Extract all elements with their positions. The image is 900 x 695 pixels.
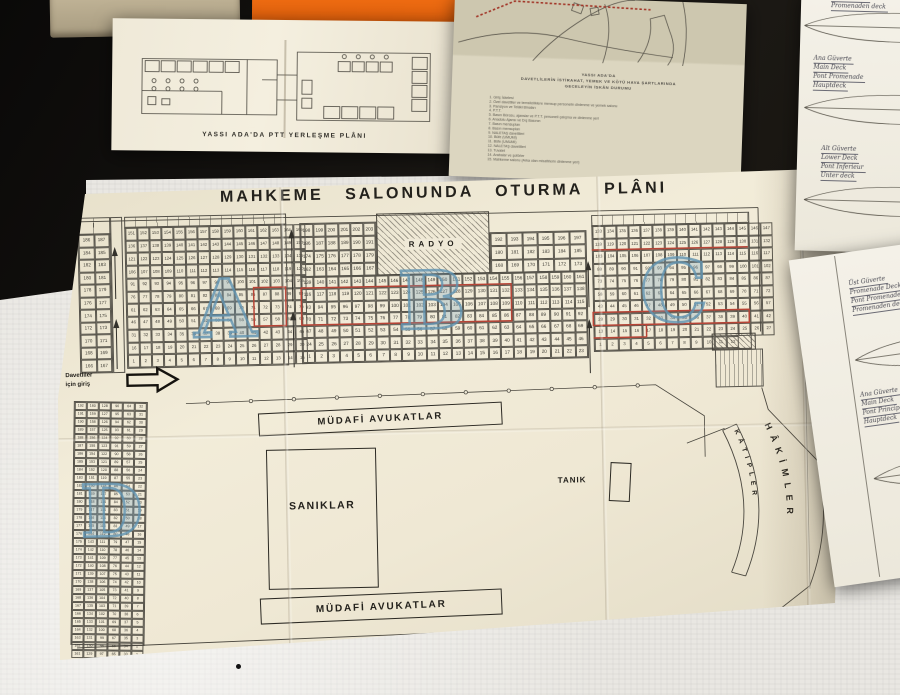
seat: 171 bbox=[96, 334, 112, 347]
info-sheet-document: YASSI ADA'DA DAVETLİLERİN İSTİRAHAT, YEM… bbox=[449, 0, 747, 186]
seat: 138 bbox=[84, 578, 96, 586]
seat: 62 bbox=[139, 304, 151, 317]
seat: 60 bbox=[122, 435, 134, 443]
seat: 14 bbox=[606, 326, 618, 339]
seat: 75 bbox=[364, 312, 377, 325]
seat: 43 bbox=[272, 326, 284, 339]
seat: 41 bbox=[120, 587, 132, 595]
seat: 73 bbox=[271, 301, 283, 314]
seat: 114 bbox=[562, 296, 575, 309]
seat: 70 bbox=[108, 610, 120, 618]
seat: 159 bbox=[549, 272, 562, 285]
seat: 172 bbox=[80, 322, 96, 335]
seat: 103 bbox=[270, 275, 282, 288]
seat: 145 bbox=[234, 238, 246, 251]
seat: 79 bbox=[163, 290, 175, 303]
seat: 93 bbox=[110, 426, 122, 434]
seat: 95 bbox=[174, 277, 186, 290]
seat: 57 bbox=[122, 459, 134, 467]
seat: 161 bbox=[71, 650, 83, 658]
seat: 131 bbox=[749, 235, 761, 248]
courtroom-seating-plan: MAHKEME SALONUNDA OTURMA PLÂNI 186187184… bbox=[58, 168, 850, 665]
seat: 62 bbox=[488, 322, 501, 335]
seat: 73 bbox=[108, 586, 120, 594]
seat: 133 bbox=[84, 618, 96, 626]
seat: 4 bbox=[340, 350, 353, 363]
seat: 132 bbox=[761, 235, 773, 248]
seat: 201 bbox=[338, 223, 351, 237]
seat: 27 bbox=[134, 443, 146, 451]
seat: 87 bbox=[513, 309, 526, 322]
seat: 66 bbox=[107, 642, 119, 650]
seat: 156 bbox=[185, 226, 197, 239]
seat: 80 bbox=[175, 290, 187, 303]
seat: 87 bbox=[762, 272, 774, 285]
seat: 12 bbox=[439, 348, 452, 361]
seat: 28 bbox=[594, 313, 606, 326]
seat: 39 bbox=[726, 311, 738, 324]
seat: 44 bbox=[121, 563, 133, 571]
seat: 106 bbox=[126, 266, 138, 279]
seat: 48 bbox=[151, 316, 163, 329]
seat: 117 bbox=[314, 289, 327, 302]
seat: 141 bbox=[688, 224, 700, 237]
seat: 99 bbox=[725, 261, 737, 274]
seat: 160 bbox=[561, 271, 574, 284]
seat: 134 bbox=[604, 226, 616, 239]
seat: 87 bbox=[259, 288, 271, 301]
seat: 13 bbox=[272, 352, 284, 365]
seat: 90 bbox=[550, 309, 563, 322]
seat: 89 bbox=[537, 309, 550, 322]
seat: 133 bbox=[270, 250, 282, 263]
seat: 107 bbox=[475, 298, 488, 311]
seat: 72 bbox=[108, 594, 120, 602]
seat: 64 bbox=[513, 322, 526, 335]
seat: 61 bbox=[122, 427, 134, 435]
seat: 156 bbox=[86, 434, 98, 442]
seat: 129 bbox=[725, 236, 737, 249]
seat: 187 bbox=[313, 237, 326, 251]
seat: 21 bbox=[551, 345, 564, 358]
seat: 162 bbox=[257, 225, 269, 238]
seat: 31 bbox=[135, 411, 147, 419]
seat: 84 bbox=[726, 273, 738, 286]
seat: 44 bbox=[550, 333, 563, 346]
seat: 63 bbox=[151, 303, 163, 316]
seat: 126 bbox=[99, 418, 111, 426]
seat: 187 bbox=[94, 234, 110, 247]
seat: 74 bbox=[108, 578, 120, 586]
seat: 186 bbox=[300, 237, 313, 251]
seat: 39 bbox=[120, 603, 132, 611]
seat: 112 bbox=[537, 297, 550, 310]
defense-lawyers-bottom-bench: MÜDAFİ AVUKATLAR bbox=[260, 588, 503, 624]
seat: 167 bbox=[72, 602, 84, 610]
seat: 11 bbox=[132, 571, 144, 579]
seat: 46 bbox=[575, 333, 588, 346]
seat: 3 bbox=[619, 338, 631, 351]
seat: 22 bbox=[563, 345, 576, 358]
seat: 198 bbox=[300, 224, 313, 238]
seat: 121 bbox=[126, 253, 138, 266]
seat: 147 bbox=[258, 238, 270, 251]
seat: 142 bbox=[198, 239, 210, 252]
seat: 6 bbox=[132, 611, 144, 619]
seat: 65 bbox=[175, 303, 187, 316]
radio-booth-label: RADYO bbox=[405, 237, 462, 249]
seat: 2 bbox=[140, 355, 152, 368]
seat: 182 bbox=[79, 260, 95, 273]
seat: 76 bbox=[376, 312, 389, 325]
seat: 39 bbox=[488, 334, 501, 347]
seat: 151 bbox=[125, 228, 137, 241]
seat: 11 bbox=[427, 348, 440, 361]
seat: 143 bbox=[210, 239, 222, 252]
seat: 175 bbox=[95, 309, 111, 322]
seat: 185 bbox=[94, 247, 110, 260]
seat: 152 bbox=[137, 227, 149, 240]
seat: 95 bbox=[327, 301, 340, 314]
seat: 17 bbox=[501, 346, 514, 359]
seat: 4 bbox=[132, 627, 144, 635]
seat: 88 bbox=[525, 309, 538, 322]
seat: 171 bbox=[72, 570, 84, 578]
witness-stand bbox=[609, 462, 632, 502]
seat: 139 bbox=[162, 240, 174, 253]
seat: 45 bbox=[618, 300, 630, 313]
seat: 48 bbox=[315, 326, 328, 339]
seat: 3 bbox=[132, 635, 144, 643]
seat: 107 bbox=[138, 265, 150, 278]
seat: 134 bbox=[525, 284, 538, 297]
seat: 168 bbox=[72, 594, 84, 602]
seat: 180 bbox=[491, 246, 507, 260]
seat: 65 bbox=[525, 321, 538, 334]
seat: 130 bbox=[737, 235, 749, 248]
seat: 27 bbox=[763, 322, 775, 335]
seat: 69 bbox=[108, 618, 120, 626]
seat: 196 bbox=[554, 232, 570, 246]
seat: 120 bbox=[351, 288, 364, 301]
seat: 174 bbox=[301, 250, 314, 264]
seat: 199 bbox=[313, 224, 326, 238]
seat: 104 bbox=[96, 594, 108, 602]
seat: 19 bbox=[526, 346, 539, 359]
seat: 71 bbox=[108, 602, 120, 610]
seat: 165 bbox=[72, 618, 84, 626]
seat bbox=[763, 335, 775, 348]
seat: 71 bbox=[750, 285, 762, 298]
defendants-label: SANIKLAR bbox=[289, 499, 355, 512]
seat: 67 bbox=[108, 634, 120, 642]
seat: 116 bbox=[749, 248, 761, 261]
seat: 137 bbox=[138, 240, 150, 253]
seat: 76 bbox=[127, 291, 139, 304]
seat: 97 bbox=[351, 300, 364, 313]
seat: 100 bbox=[737, 260, 749, 273]
seat: 32 bbox=[139, 329, 151, 342]
seat: 53 bbox=[377, 324, 390, 337]
seat: 118 bbox=[270, 263, 282, 276]
seat: 68 bbox=[714, 286, 726, 299]
deck-labels-main: Ana GüverteMain DeckPont PromenadeHauptd… bbox=[813, 55, 866, 93]
seat: 105 bbox=[96, 586, 108, 594]
seat: 23 bbox=[575, 345, 588, 358]
seat: 14 bbox=[284, 352, 296, 365]
seat: 5 bbox=[132, 619, 144, 627]
seat: 155 bbox=[173, 227, 185, 240]
seat: 109 bbox=[97, 554, 109, 562]
defense-lawyers-top-label: MÜDAFİ AVUKATLAR bbox=[317, 410, 443, 427]
seat: 159 bbox=[221, 226, 233, 239]
seat: 15 bbox=[476, 347, 489, 360]
seat: 132 bbox=[258, 250, 270, 263]
seat: 99 bbox=[376, 300, 389, 313]
seat: 14 bbox=[464, 347, 477, 360]
seat: 43 bbox=[538, 333, 551, 346]
seat: 29 bbox=[606, 313, 618, 326]
seat: 29 bbox=[365, 337, 378, 350]
seat: 13 bbox=[133, 555, 145, 563]
seat: 85 bbox=[488, 310, 501, 323]
seat: 20 bbox=[176, 341, 188, 354]
seat: 132 bbox=[84, 626, 96, 634]
seat: 140 bbox=[676, 224, 688, 237]
seat: 186 bbox=[74, 450, 86, 458]
seat: 20 bbox=[538, 346, 551, 359]
seat: 168 bbox=[81, 347, 97, 360]
seat: 62 bbox=[123, 419, 135, 427]
seat: 134 bbox=[84, 610, 96, 618]
seat: 46 bbox=[127, 317, 139, 330]
seat: 56 bbox=[750, 298, 762, 311]
seat: 103 bbox=[593, 251, 605, 264]
seat: 64 bbox=[123, 403, 135, 411]
seat: 183 bbox=[538, 245, 554, 259]
seat: 34 bbox=[163, 329, 175, 342]
seat: 170 bbox=[80, 335, 96, 348]
seat: 145 bbox=[376, 275, 389, 288]
seat: 108 bbox=[97, 562, 109, 570]
seat: 134 bbox=[282, 250, 294, 263]
seat: 140 bbox=[174, 239, 186, 252]
seat: 177 bbox=[338, 250, 351, 264]
seat: 85 bbox=[738, 273, 750, 286]
seat: 101 bbox=[96, 618, 108, 626]
seat: 193 bbox=[506, 233, 522, 247]
seat: 57 bbox=[259, 314, 271, 327]
seat: 33 bbox=[151, 329, 163, 342]
seat: 49 bbox=[163, 316, 175, 329]
seat: 78 bbox=[151, 291, 163, 304]
seat: 115 bbox=[574, 296, 587, 309]
seat: 18 bbox=[152, 342, 164, 355]
seat: 130 bbox=[475, 286, 488, 299]
seat: 10 bbox=[414, 348, 427, 361]
seat: 143 bbox=[351, 276, 364, 289]
seat: 156 bbox=[512, 272, 525, 285]
seat: 136 bbox=[549, 284, 562, 297]
seat: 40 bbox=[501, 334, 514, 347]
seat: 36 bbox=[120, 627, 132, 635]
seat: 27 bbox=[260, 339, 272, 352]
seat: 8 bbox=[132, 595, 144, 603]
seat: 5 bbox=[352, 350, 365, 363]
seat: 59 bbox=[606, 288, 618, 301]
seat: 200 bbox=[325, 223, 338, 237]
seat: 90 bbox=[110, 450, 122, 458]
seat: 181 bbox=[507, 246, 523, 260]
seat: 113 bbox=[713, 248, 725, 261]
seat: 15 bbox=[618, 325, 630, 338]
seat: 76 bbox=[109, 562, 121, 570]
seat: 47 bbox=[139, 316, 151, 329]
seat: 89 bbox=[110, 458, 122, 466]
seat: 130 bbox=[83, 642, 95, 650]
seat: 144 bbox=[724, 223, 736, 236]
seat: 194 bbox=[522, 232, 538, 246]
seat: 154 bbox=[86, 450, 98, 458]
seat: 69 bbox=[726, 286, 738, 299]
seat: 74 bbox=[283, 301, 295, 314]
seat: 30 bbox=[377, 337, 390, 350]
deck-labels-upper: Üst GüvertePromenaden deck bbox=[831, 0, 888, 13]
seat: 6 bbox=[365, 349, 378, 362]
seat: 136 bbox=[628, 225, 640, 238]
seat: 203 bbox=[363, 223, 376, 237]
seat: 74 bbox=[605, 276, 617, 289]
seat: 102 bbox=[761, 260, 773, 273]
seat: 12 bbox=[133, 563, 145, 571]
seat: 67 bbox=[550, 321, 563, 334]
deck-labels-promenade: Üst GüvertePromenade DeckPont PromenadeP… bbox=[848, 272, 900, 316]
seat: 83 bbox=[714, 273, 726, 286]
seat: 178 bbox=[79, 285, 95, 298]
seat: 137 bbox=[84, 586, 96, 594]
seat: 45 bbox=[563, 333, 576, 346]
seat: 136 bbox=[126, 240, 138, 253]
seat: 137 bbox=[562, 284, 575, 297]
seat: 35 bbox=[175, 328, 187, 341]
seat: 73 bbox=[339, 313, 352, 326]
deck-labels-main: Ana GüverteMain DeckPont PrincipalHauptd… bbox=[860, 386, 900, 428]
seat: 125 bbox=[174, 252, 186, 265]
seat: 190 bbox=[350, 236, 363, 250]
seat: 90 bbox=[617, 263, 629, 276]
seat: 124 bbox=[98, 434, 110, 442]
seat: 108 bbox=[488, 298, 501, 311]
seat: 169 bbox=[96, 347, 112, 360]
seat: 1 bbox=[303, 351, 316, 364]
seat: 190 bbox=[75, 418, 87, 426]
seat: 166 bbox=[72, 610, 84, 618]
seat: 58 bbox=[122, 451, 134, 459]
seat: 121 bbox=[364, 288, 377, 301]
deck-labels-lower: Alt GüverteLower DeckPont InferieurUnter… bbox=[820, 145, 866, 183]
seat: 55 bbox=[738, 298, 750, 311]
seat: 161 bbox=[245, 225, 257, 238]
seat: 93 bbox=[150, 278, 162, 291]
seat: 153 bbox=[475, 273, 488, 286]
seat: 139 bbox=[664, 224, 676, 237]
seat: 101 bbox=[749, 260, 761, 273]
seat: 77 bbox=[109, 554, 121, 562]
seat: 66 bbox=[538, 321, 551, 334]
seat: 119 bbox=[282, 262, 294, 275]
seat: 38 bbox=[714, 311, 726, 324]
info-sheet-heading: YASSI ADA'DA DAVETLİLERİN İSTİRAHAT, YEM… bbox=[462, 68, 735, 95]
seat: 189 bbox=[338, 236, 351, 250]
seat: 176 bbox=[326, 250, 339, 264]
seat: 49 bbox=[327, 325, 340, 338]
seat: 179 bbox=[363, 249, 376, 263]
seat: 110 bbox=[512, 297, 525, 310]
seat: 58 bbox=[594, 288, 606, 301]
seat: 109 bbox=[162, 265, 174, 278]
seat: 95 bbox=[111, 410, 123, 418]
seat: 123 bbox=[98, 442, 110, 450]
seat: 31 bbox=[127, 329, 139, 342]
seat: 4 bbox=[164, 354, 176, 367]
seat: 89 bbox=[605, 263, 617, 276]
seat: 68 bbox=[563, 321, 576, 334]
seat: 86 bbox=[500, 310, 513, 323]
seat: 176 bbox=[80, 297, 96, 310]
seat: 27 bbox=[340, 338, 353, 351]
defense-lawyers-bottom-label: MÜDAFİ AVUKATLAR bbox=[316, 598, 447, 614]
seat: 158 bbox=[209, 226, 221, 239]
entrance-label-line2: için giriş bbox=[65, 381, 92, 391]
seat: 47 bbox=[302, 326, 315, 339]
seat: 148 bbox=[270, 237, 282, 250]
seat: 18 bbox=[513, 346, 526, 359]
seat: 26 bbox=[327, 338, 340, 351]
island-map-sketch bbox=[453, 0, 747, 68]
seat: 145 bbox=[736, 223, 748, 236]
seat: 29 bbox=[284, 339, 296, 352]
seat: 99 bbox=[96, 634, 108, 642]
seat: 35 bbox=[120, 635, 132, 643]
stamp-section-c: C bbox=[639, 249, 709, 336]
seat: 100 bbox=[96, 626, 108, 634]
entrance-stairs bbox=[715, 348, 764, 387]
seat: 40 bbox=[120, 595, 132, 603]
ptt-plan-document: YASSI ADA'DA PTT YERLEŞME PLÂNI bbox=[111, 18, 458, 154]
seat: 154 bbox=[161, 227, 173, 240]
seat: 141 bbox=[326, 276, 339, 289]
seat: 17 bbox=[140, 342, 152, 355]
seat: 115 bbox=[737, 248, 749, 261]
seat: 45 bbox=[121, 555, 133, 563]
seat: 167 bbox=[97, 360, 113, 373]
deck-plan-sheet-top: Üst GüvertePromenaden deck Ana GüverteMa… bbox=[795, 0, 900, 254]
seat: 2 bbox=[607, 338, 619, 351]
seat: 1 bbox=[128, 355, 140, 368]
judges-label: HÂKİMLER bbox=[762, 421, 795, 521]
seat: 192 bbox=[75, 402, 87, 410]
seat: 114 bbox=[725, 248, 737, 261]
seat: 127 bbox=[99, 410, 111, 418]
seat: 102 bbox=[96, 610, 108, 618]
seat: 153 bbox=[86, 458, 98, 466]
seat: 195 bbox=[538, 232, 554, 246]
seat: 174 bbox=[80, 310, 96, 323]
seat: 63 bbox=[501, 322, 514, 335]
seat: 110 bbox=[174, 265, 186, 278]
seat: 28 bbox=[272, 339, 284, 352]
seat: 185 bbox=[570, 245, 586, 259]
